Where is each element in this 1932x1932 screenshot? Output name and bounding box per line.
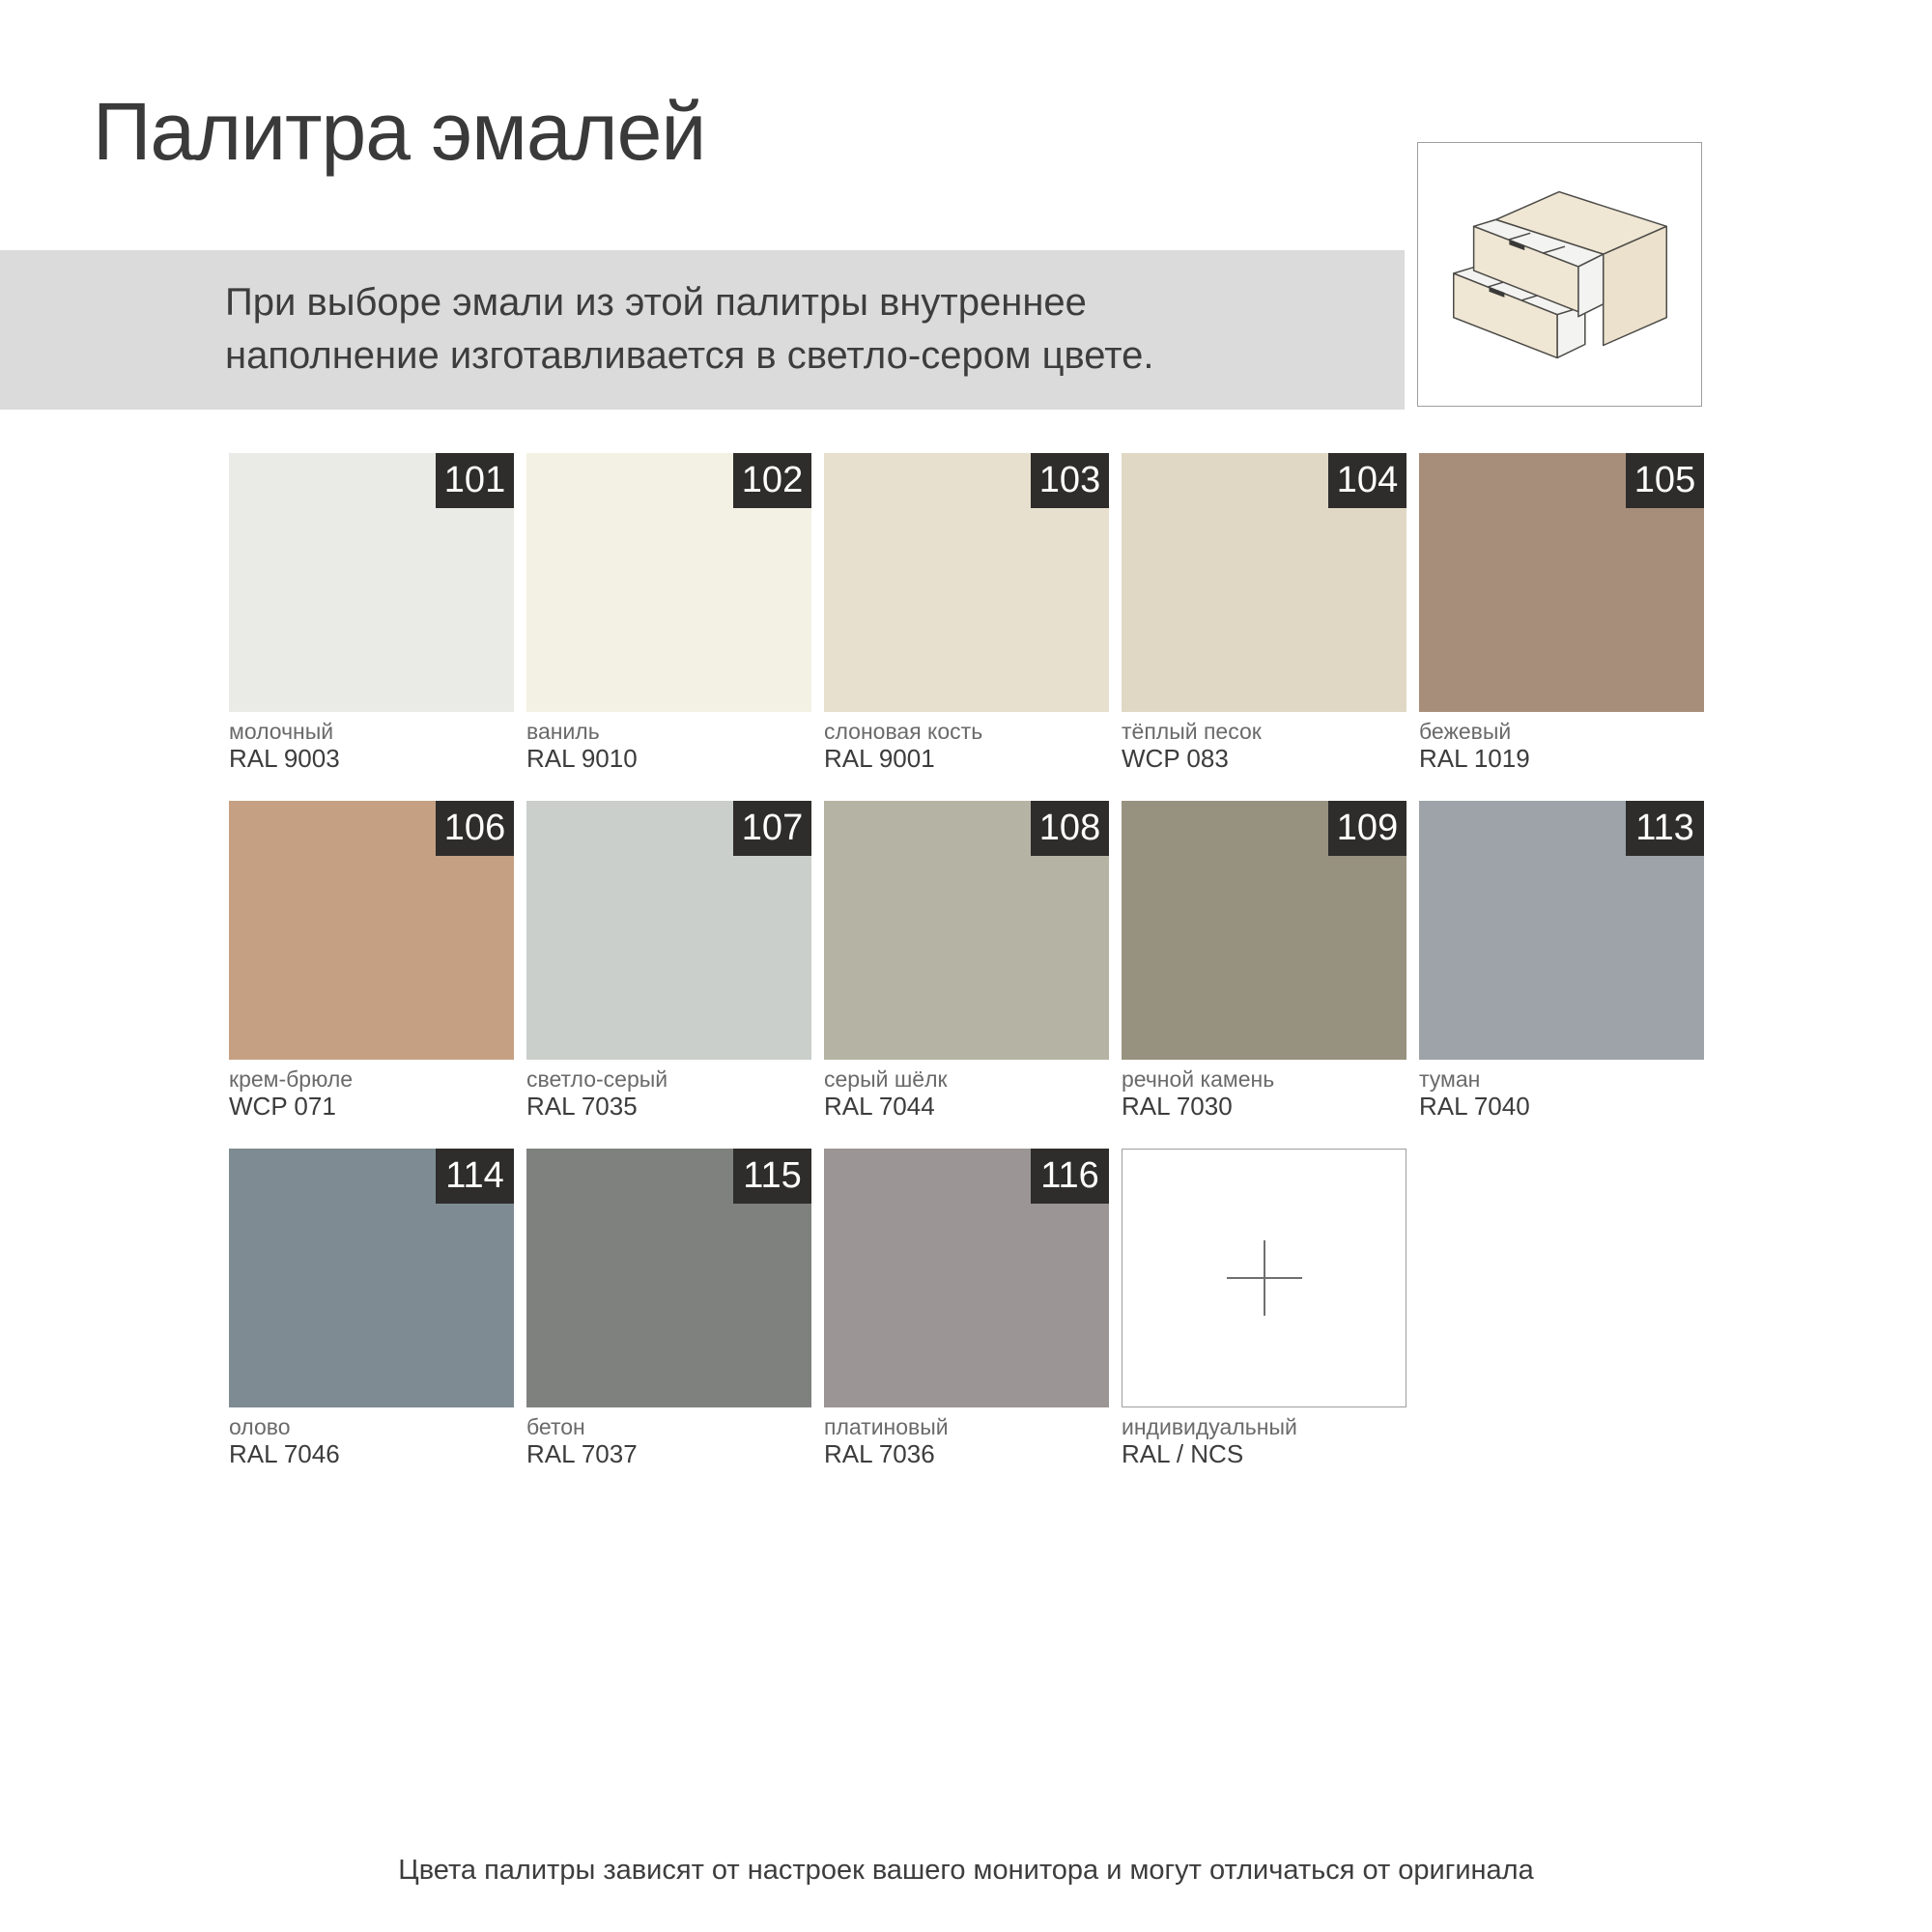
swatch-code: WCP 083 xyxy=(1122,744,1406,773)
swatch-name: речной камень xyxy=(1122,1066,1406,1092)
palette-grid: 101молочныйRAL 9003102ванильRAL 9010103с… xyxy=(229,453,1704,1468)
swatch-name: туман xyxy=(1419,1066,1704,1092)
swatch-code: RAL 9001 xyxy=(824,744,1109,773)
swatch-code: RAL 7044 xyxy=(824,1092,1109,1121)
page-title: Палитра эмалей xyxy=(93,87,705,176)
swatch-name: крем-брюле xyxy=(229,1066,514,1092)
swatch-name: платиновый xyxy=(824,1414,1109,1439)
swatch-number-badge: 115 xyxy=(733,1149,811,1204)
swatch-number-badge: 106 xyxy=(436,801,514,856)
swatch-cell: 116платиновыйRAL 7036 xyxy=(824,1149,1109,1468)
swatch-cell: 106крем-брюлеWCP 071 xyxy=(229,801,514,1121)
swatch-code: RAL 7036 xyxy=(824,1439,1109,1468)
info-banner: При выборе эмали из этой палитры внутрен… xyxy=(0,250,1405,410)
swatch-number-badge: 102 xyxy=(733,453,811,508)
swatch-number-badge: 101 xyxy=(436,453,514,508)
swatch-number-badge: 113 xyxy=(1626,801,1704,856)
color-swatch[interactable]: 101 xyxy=(229,453,514,712)
color-swatch[interactable]: 102 xyxy=(526,453,811,712)
swatch-name: тёплый песок xyxy=(1122,719,1406,744)
swatch-number-badge: 109 xyxy=(1328,801,1406,856)
plus-icon xyxy=(1227,1240,1302,1316)
swatch-code: RAL 1019 xyxy=(1419,744,1704,773)
color-swatch[interactable]: 116 xyxy=(824,1149,1109,1407)
swatch-cell: 102ванильRAL 9010 xyxy=(526,453,811,773)
swatch-cell: 104тёплый песокWCP 083 xyxy=(1122,453,1406,773)
cabinet-two-open-drawers-illustration xyxy=(1418,143,1701,406)
swatch-name: бетон xyxy=(526,1414,811,1439)
swatch-name: ваниль xyxy=(526,719,811,744)
swatch-name: светло-серый xyxy=(526,1066,811,1092)
color-swatch[interactable]: 106 xyxy=(229,801,514,1060)
disclaimer-note: Цвета палитры зависят от настроек вашего… xyxy=(0,1853,1932,1888)
swatch-code: RAL 7040 xyxy=(1419,1092,1704,1121)
color-swatch[interactable]: 104 xyxy=(1122,453,1406,712)
swatch-name: индивидуальный xyxy=(1122,1414,1406,1439)
swatch-number-badge: 114 xyxy=(436,1149,514,1204)
swatch-number-badge: 105 xyxy=(1626,453,1704,508)
swatch-cell: 103слоновая костьRAL 9001 xyxy=(824,453,1109,773)
swatch-code: RAL 9010 xyxy=(526,744,811,773)
swatch-cell: 115бетонRAL 7037 xyxy=(526,1149,811,1468)
swatch-name: серый шёлк xyxy=(824,1066,1109,1092)
swatch-name: молочный xyxy=(229,719,514,744)
color-swatch[interactable]: 105 xyxy=(1419,453,1704,712)
swatch-number-badge: 104 xyxy=(1328,453,1406,508)
swatch-cell: 113туманRAL 7040 xyxy=(1419,801,1704,1121)
swatch-name: бежевый xyxy=(1419,719,1704,744)
color-swatch[interactable]: 103 xyxy=(824,453,1109,712)
swatch-name: олово xyxy=(229,1414,514,1439)
color-swatch[interactable]: 113 xyxy=(1419,801,1704,1060)
color-swatch[interactable]: 114 xyxy=(229,1149,514,1407)
swatch-cell: 109речной каменьRAL 7030 xyxy=(1122,801,1406,1121)
swatch-cell: 101молочныйRAL 9003 xyxy=(229,453,514,773)
swatch-number-badge: 116 xyxy=(1031,1149,1109,1204)
swatch-code: WCP 071 xyxy=(229,1092,514,1121)
swatch-cell: индивидуальныйRAL / NCS xyxy=(1122,1149,1406,1468)
swatch-code: RAL 9003 xyxy=(229,744,514,773)
swatch-code: RAL 7046 xyxy=(229,1439,514,1468)
color-swatch[interactable]: 107 xyxy=(526,801,811,1060)
swatch-cell: 105бежевыйRAL 1019 xyxy=(1419,453,1704,773)
swatch-cell: 108серый шёлкRAL 7044 xyxy=(824,801,1109,1121)
swatch-cell: 107светло-серыйRAL 7035 xyxy=(526,801,811,1121)
color-swatch[interactable]: 115 xyxy=(526,1149,811,1407)
swatch-name: слоновая кость xyxy=(824,719,1109,744)
swatch-number-badge: 108 xyxy=(1031,801,1109,856)
color-swatch[interactable]: 109 xyxy=(1122,801,1406,1060)
swatch-code: RAL 7037 xyxy=(526,1439,811,1468)
swatch-number-badge: 103 xyxy=(1031,453,1109,508)
color-swatch[interactable]: 108 xyxy=(824,801,1109,1060)
cabinet-illustration-frame xyxy=(1417,142,1702,407)
info-banner-text: При выборе эмали из этой палитры внутрен… xyxy=(225,276,1249,383)
swatch-code: RAL / NCS xyxy=(1122,1439,1406,1468)
swatch-cell: 114оловоRAL 7046 xyxy=(229,1149,514,1468)
swatch-number-badge: 107 xyxy=(733,801,811,856)
swatch-code: RAL 7035 xyxy=(526,1092,811,1121)
swatch-code: RAL 7030 xyxy=(1122,1092,1406,1121)
custom-color-swatch[interactable] xyxy=(1122,1149,1406,1407)
